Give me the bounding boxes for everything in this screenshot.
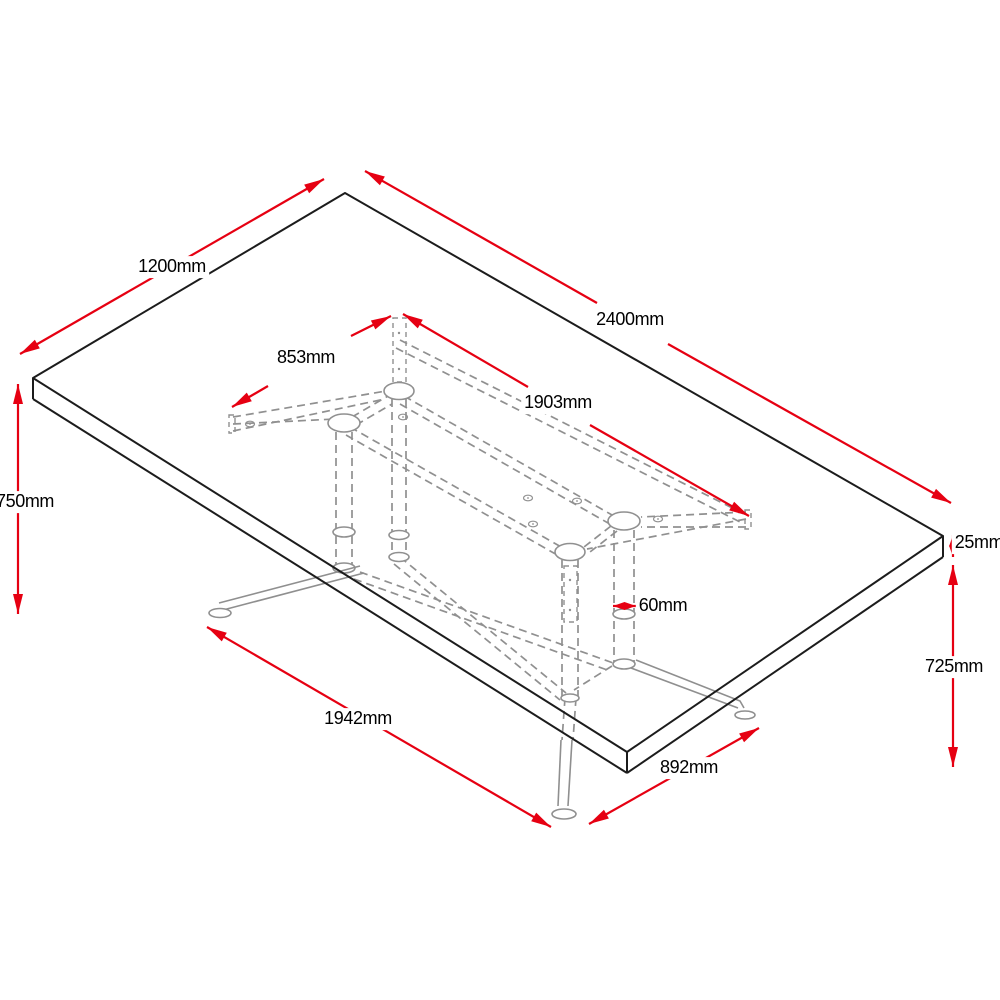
rail-rear-top [400,340,744,514]
column-plate [564,566,577,622]
hub-link [352,396,388,417]
dim-label-clearance-height: 725mm [922,656,986,678]
rail-rear-bottom [396,348,740,522]
leg-hidden [574,666,612,690]
dimension-arrow-1903-a [403,314,528,387]
fixing-holes [246,332,663,611]
column-collar [333,527,355,537]
leg-strut [223,573,364,610]
column-hub [555,544,585,561]
dim-label-overall-height: 750mm [0,491,57,513]
column-hub [384,383,414,400]
rail-mid-top [404,396,619,519]
leg-strut [558,740,561,806]
column-hub [608,512,640,530]
drawing-svg [0,0,1000,1000]
hub-link [590,531,617,552]
dim-label-top-length: 2400mm [593,309,667,331]
dimension-arrow-853-a [232,386,268,407]
dim-label-foot-span-width: 892mm [657,757,721,779]
hub-link [356,404,392,425]
dimension-arrow-2400-a [365,171,597,303]
foot-disc [735,711,755,719]
leg-strut [568,740,572,806]
dim-label-foot-span-length: 1942mm [321,708,395,730]
column-collar [561,694,579,702]
rail-front-top [350,427,563,548]
dimension-arrow-2400-b [668,344,951,503]
foot-disc [552,809,576,819]
hub-link [584,526,611,547]
dim-label-column-diameter: 60mm [636,595,690,617]
dim-label-base-frame-length: 1903mm [521,392,595,414]
rail-mid-bottom [400,404,615,527]
pedestal-hubs [328,383,640,703]
column-collar [389,531,409,540]
dimension-arrow-1903-b [590,425,749,516]
column-collar [613,609,635,619]
dim-label-top-thickness: 25mm [952,532,1000,554]
foot-disc [209,609,231,618]
tabletop-outline [33,193,943,773]
dim-label-top-width: 1200mm [135,256,209,278]
dimension-drawing-canvas: 1200mm 2400mm 853mm 1903mm 750mm 25mm 72… [0,0,1000,1000]
dim-label-base-frame-width: 853mm [274,347,338,369]
tabletop-right-bottom-edge [627,557,943,773]
column-hub [328,414,360,432]
column-collar [389,553,409,562]
left-arm-line [233,390,392,417]
dimension-arrow-853-b [351,316,391,336]
left-arm-line [233,399,385,431]
